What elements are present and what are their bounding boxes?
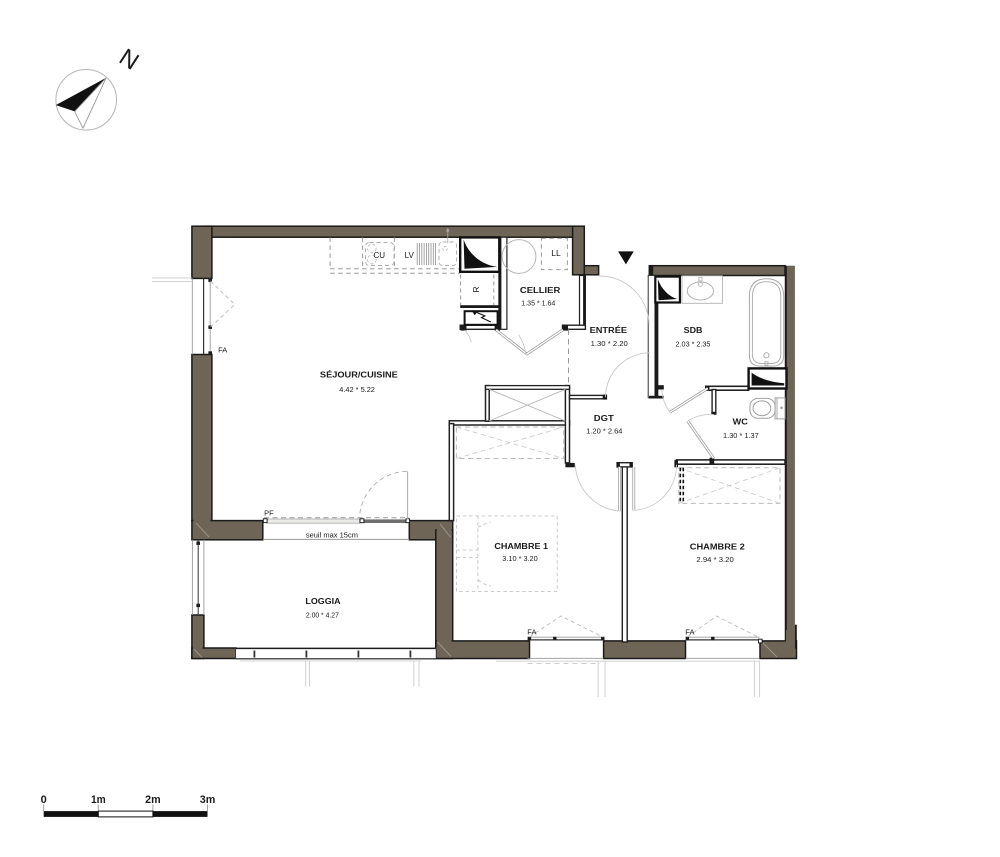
svg-text:1.30 * 1.37: 1.30 * 1.37	[723, 431, 759, 440]
svg-text:1m: 1m	[91, 794, 106, 806]
svg-text:LOGGIA: LOGGIA	[305, 596, 340, 606]
svg-text:1.20 * 2.64: 1.20 * 2.64	[586, 426, 622, 435]
svg-text:3.10 * 3.20: 3.10 * 3.20	[502, 554, 537, 563]
svg-text:3m: 3m	[200, 794, 216, 806]
svg-text:CHAMBRE 2: CHAMBRE 2	[690, 542, 745, 552]
svg-text:ENTRÉE: ENTRÉE	[590, 325, 628, 335]
svg-text:WC: WC	[733, 417, 748, 427]
svg-text:CELLIER: CELLIER	[520, 285, 561, 295]
svg-text:FA: FA	[527, 627, 536, 636]
svg-text:2.94 * 3.20: 2.94 * 3.20	[696, 555, 733, 564]
svg-text:LL: LL	[551, 248, 561, 258]
svg-text:2m: 2m	[145, 794, 161, 806]
svg-text:4.42 * 5.22: 4.42 * 5.22	[339, 385, 375, 394]
svg-text:2.00 * 4.27: 2.00 * 4.27	[306, 610, 339, 619]
svg-text:FA: FA	[218, 345, 227, 354]
svg-text:0: 0	[41, 794, 47, 806]
svg-text:SDB: SDB	[684, 325, 703, 335]
svg-text:CHAMBRE 1: CHAMBRE 1	[494, 541, 548, 551]
svg-text:2.03 * 2.35: 2.03 * 2.35	[676, 339, 711, 348]
svg-text:DGT: DGT	[594, 413, 615, 423]
svg-text:SÉJOUR/CUISINE: SÉJOUR/CUISINE	[320, 370, 398, 380]
svg-text:1.35 * 1.64: 1.35 * 1.64	[521, 298, 555, 307]
svg-text:seuil max 15cm: seuil max 15cm	[306, 530, 358, 539]
svg-text:1.30 * 2.20: 1.30 * 2.20	[591, 339, 628, 348]
svg-text:FA: FA	[685, 627, 694, 636]
svg-text:R: R	[471, 286, 481, 292]
svg-text:CU: CU	[374, 251, 386, 260]
svg-text:PF: PF	[264, 508, 274, 517]
svg-text:LV: LV	[405, 251, 415, 260]
